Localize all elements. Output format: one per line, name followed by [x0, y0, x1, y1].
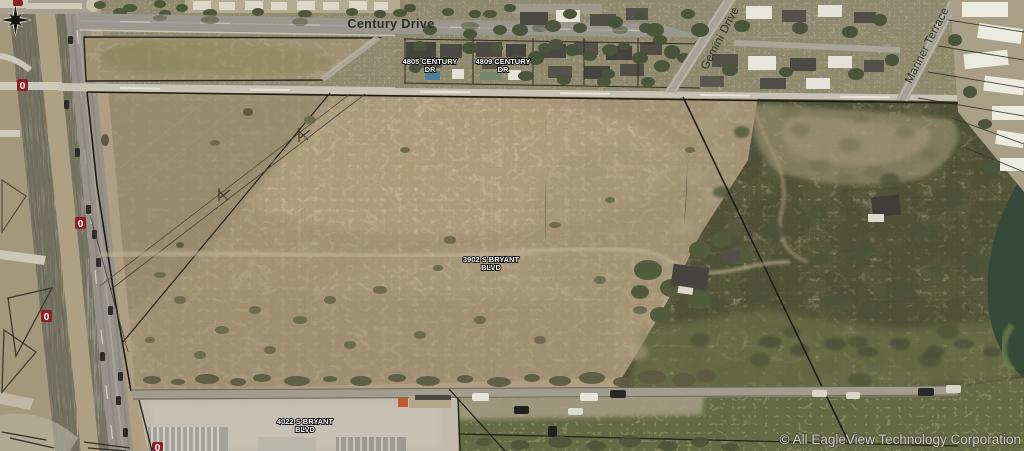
svg-text:BLVD: BLVD [481, 263, 501, 272]
svg-text:0: 0 [78, 219, 84, 230]
svg-text:© All EagleView Technology Cor: © All EagleView Technology Corporation [780, 432, 1021, 447]
svg-text:Century Drive: Century Drive [347, 17, 434, 31]
svg-text:0: 0 [155, 443, 161, 451]
svg-text:BLVD: BLVD [295, 425, 315, 434]
svg-text:DR: DR [425, 65, 436, 74]
svg-text:0: 0 [44, 312, 50, 323]
svg-text:DR: DR [498, 65, 509, 74]
svg-text:0: 0 [20, 81, 26, 92]
